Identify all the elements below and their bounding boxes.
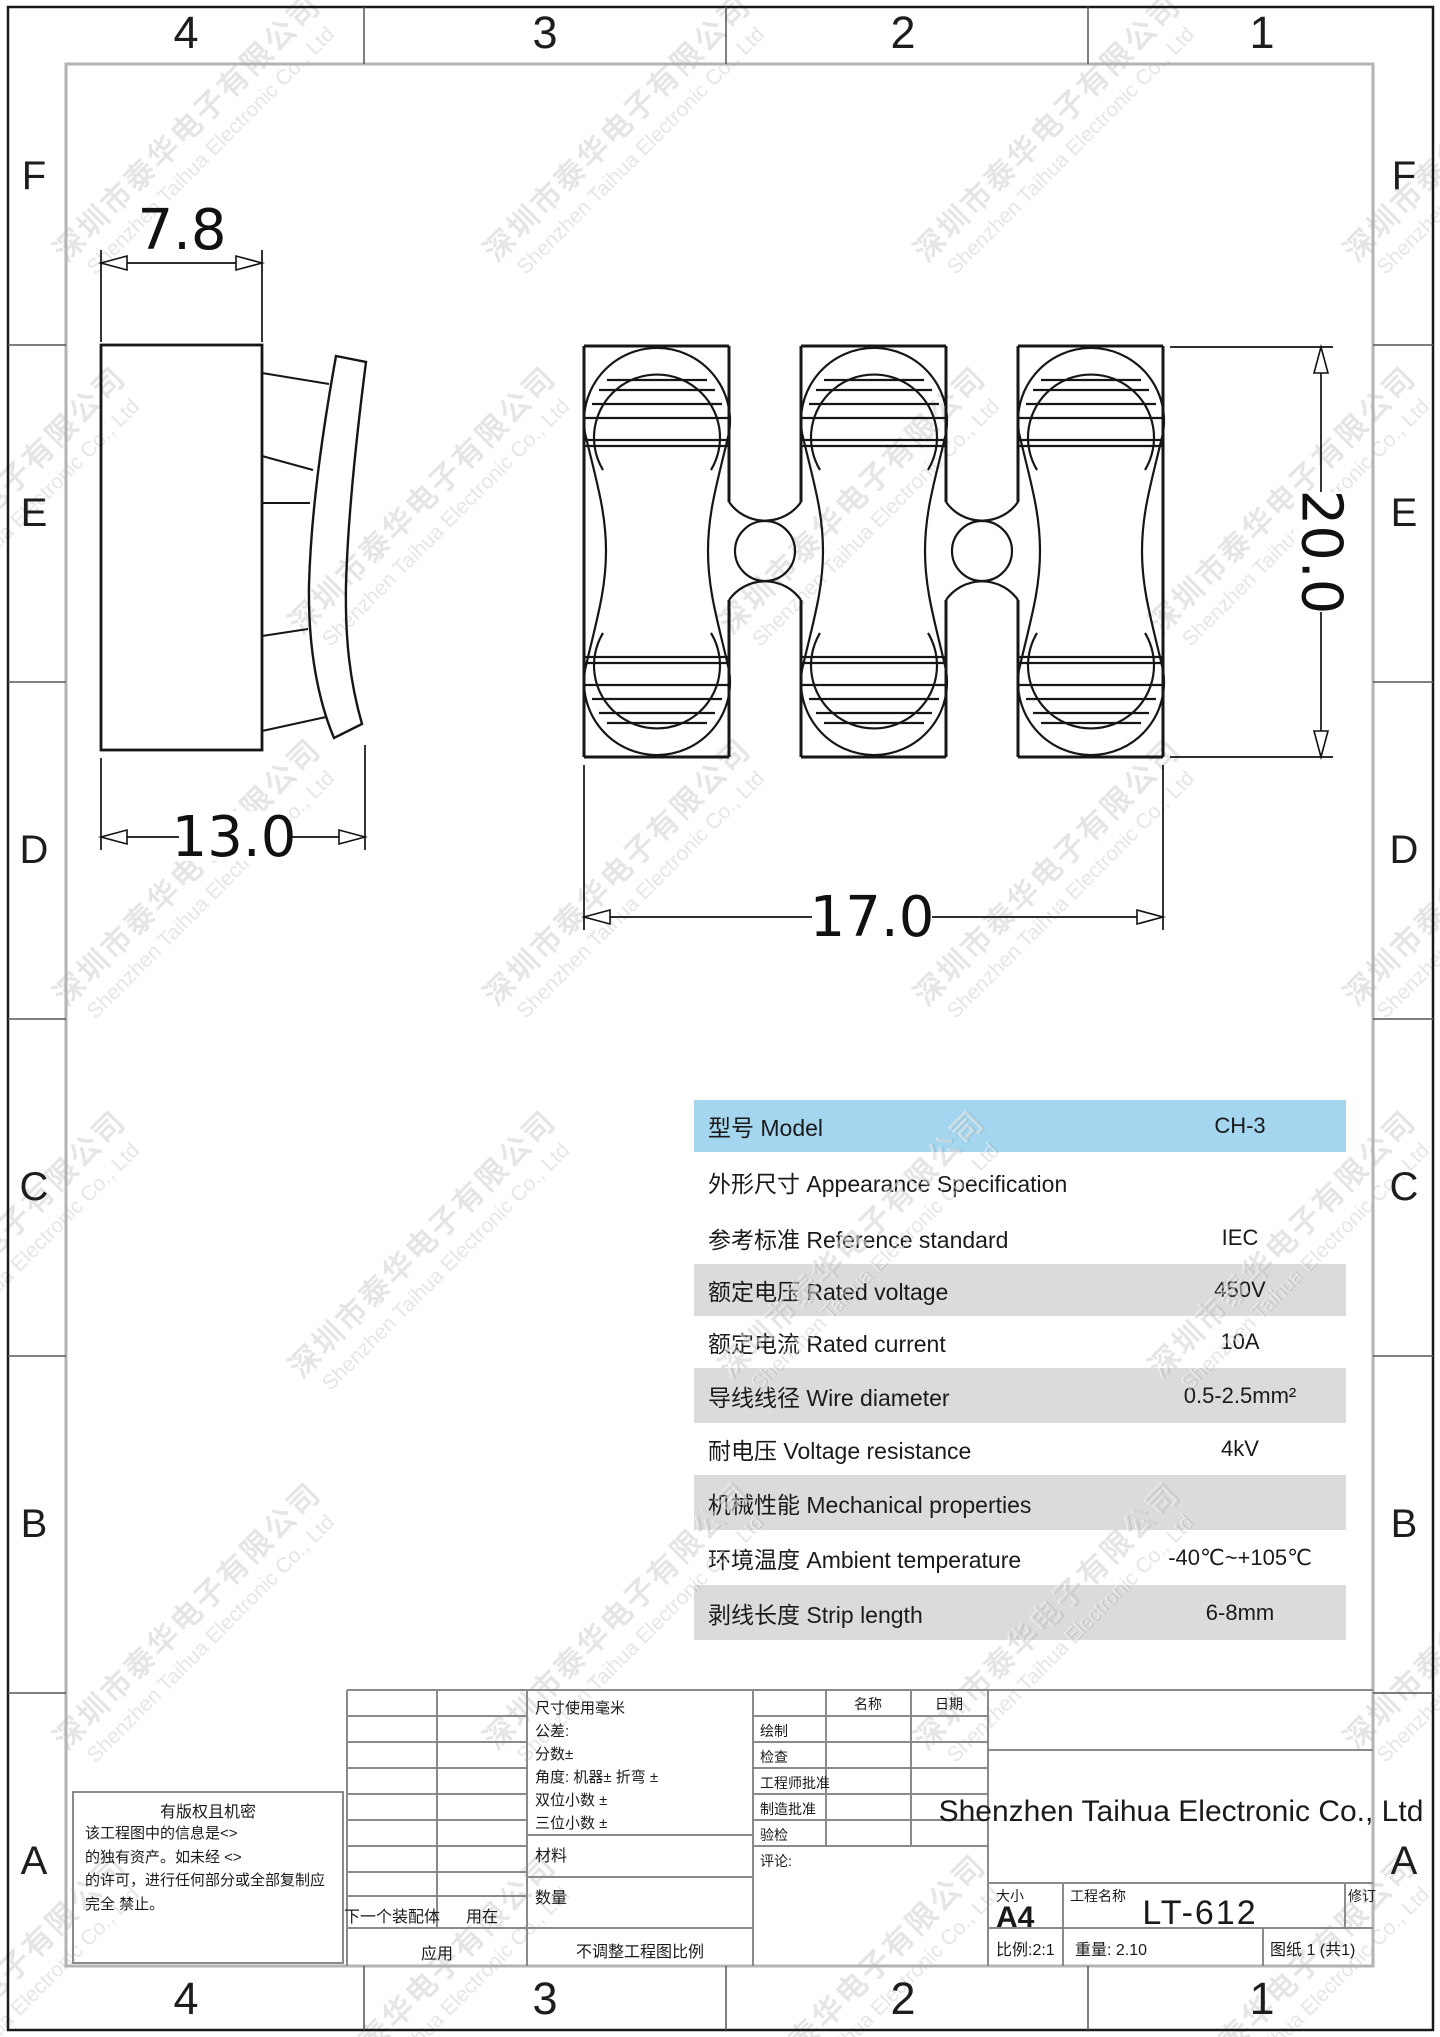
grid-row-label: E bbox=[8, 483, 60, 543]
grid-row-label: A bbox=[1378, 1831, 1430, 1891]
sheet-number-text: 图纸 1 (共1) bbox=[1270, 1936, 1355, 1960]
application-label: 应用 bbox=[421, 1940, 453, 1964]
weight-text: 重量: 2.10 bbox=[1075, 1936, 1147, 1960]
material-label: 材料 bbox=[535, 1842, 567, 1866]
grid-col-label: 2 bbox=[858, 1970, 948, 2028]
drawing-sheet: 型号 ModelCH-3 外形尺寸 Appearance Specificati… bbox=[0, 0, 1440, 2037]
revision-label: 修订 bbox=[1348, 1886, 1376, 1906]
company-name: Shenzhen Taihua Electronic Co., Ltd bbox=[939, 1795, 1424, 1829]
comments-label: 评论: bbox=[760, 1851, 792, 1871]
approvals-date-header: 日期 bbox=[935, 1694, 963, 1714]
size-value: A4 bbox=[996, 1901, 1034, 1935]
grid-col-label: 1 bbox=[1217, 4, 1307, 62]
scale-text: 比例:2:1 bbox=[996, 1936, 1055, 1960]
approval-row-label: 检查 bbox=[760, 1747, 788, 1767]
approval-row-label: 工程师批准 bbox=[760, 1773, 830, 1793]
grid-col-label: 2 bbox=[858, 4, 948, 62]
copyright-title: 有版权且机密 bbox=[73, 1798, 343, 1822]
grid-row-label: B bbox=[1378, 1494, 1430, 1554]
tolerance-notes: 尺寸使用毫米 公差: 分数± 角度: 机器± 折弯 ± 双位小数 ± 三位小数 … bbox=[535, 1697, 750, 1835]
grid-row-label: E bbox=[1378, 483, 1430, 543]
grid-row-label: D bbox=[1378, 820, 1430, 880]
grid-col-label: 3 bbox=[500, 1970, 590, 2028]
grid-row-label: B bbox=[8, 1494, 60, 1554]
grid-col-label: 3 bbox=[500, 4, 590, 62]
no-scale-note: 不调整工程图比例 bbox=[576, 1938, 704, 1962]
grid-row-label: C bbox=[8, 1157, 60, 1217]
approval-row-label: 制造批准 bbox=[760, 1799, 816, 1819]
quantity-label: 数量 bbox=[535, 1884, 567, 1908]
grid-col-label: 4 bbox=[141, 4, 231, 62]
used-on-label: 用在 bbox=[466, 1903, 498, 1927]
grid-row-label: A bbox=[8, 1831, 60, 1891]
grid-col-label: 4 bbox=[141, 1970, 231, 2028]
approvals-name-header: 名称 bbox=[854, 1694, 882, 1714]
approval-row-label: 绘制 bbox=[760, 1721, 788, 1741]
grid-row-label: F bbox=[1378, 146, 1430, 206]
grid-row-label: D bbox=[8, 820, 60, 880]
project-label: 工程名称 bbox=[1070, 1886, 1126, 1906]
grid-col-label: 1 bbox=[1217, 1970, 1307, 2028]
project-value: LT-612 bbox=[1142, 1894, 1257, 1933]
grid-row-label: C bbox=[1378, 1157, 1430, 1217]
grid-row-label: F bbox=[8, 146, 60, 206]
next-assembly-label: 下一个装配体 bbox=[344, 1903, 440, 1927]
approval-row-label: 验检 bbox=[760, 1825, 788, 1845]
copyright-text: 该工程图中的信息是<> 的独有资产。如未经 <> 的许可，进行任何部分或全部复制… bbox=[85, 1822, 337, 1916]
